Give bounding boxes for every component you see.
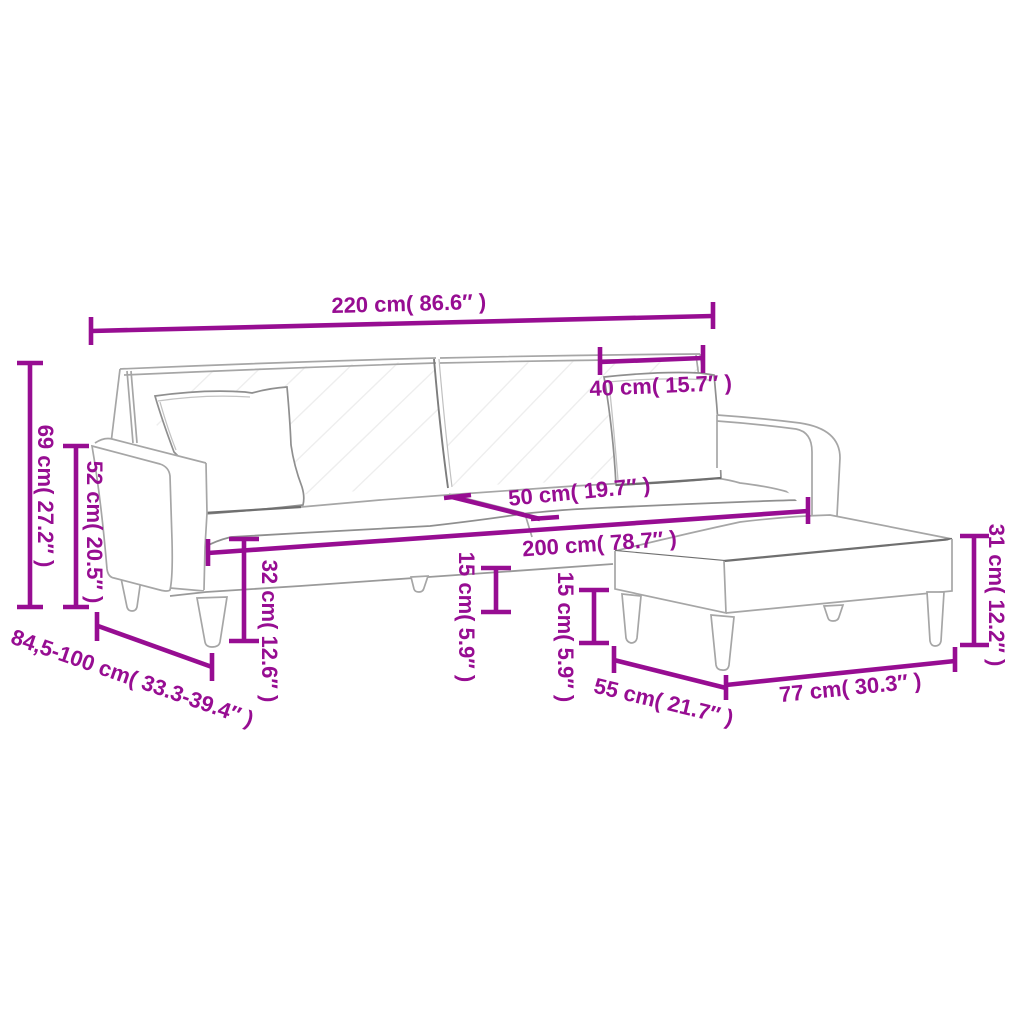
svg-text:15 cm( 5.9″ ): 15 cm( 5.9″ ) bbox=[553, 572, 578, 702]
svg-text:69 cm( 27.2″ ): 69 cm( 27.2″ ) bbox=[33, 425, 58, 568]
svg-text:15 cm( 5.9″ ): 15 cm( 5.9″ ) bbox=[454, 552, 479, 682]
svg-text:220 cm( 86.6″ ): 220 cm( 86.6″ ) bbox=[331, 289, 486, 318]
svg-text:52 cm( 20.5″ ): 52 cm( 20.5″ ) bbox=[82, 461, 107, 604]
svg-text:32 cm( 12.6″ ): 32 cm( 12.6″ ) bbox=[257, 560, 282, 703]
svg-text:31 cm( 12.2″ ): 31 cm( 12.2″ ) bbox=[984, 524, 1009, 667]
